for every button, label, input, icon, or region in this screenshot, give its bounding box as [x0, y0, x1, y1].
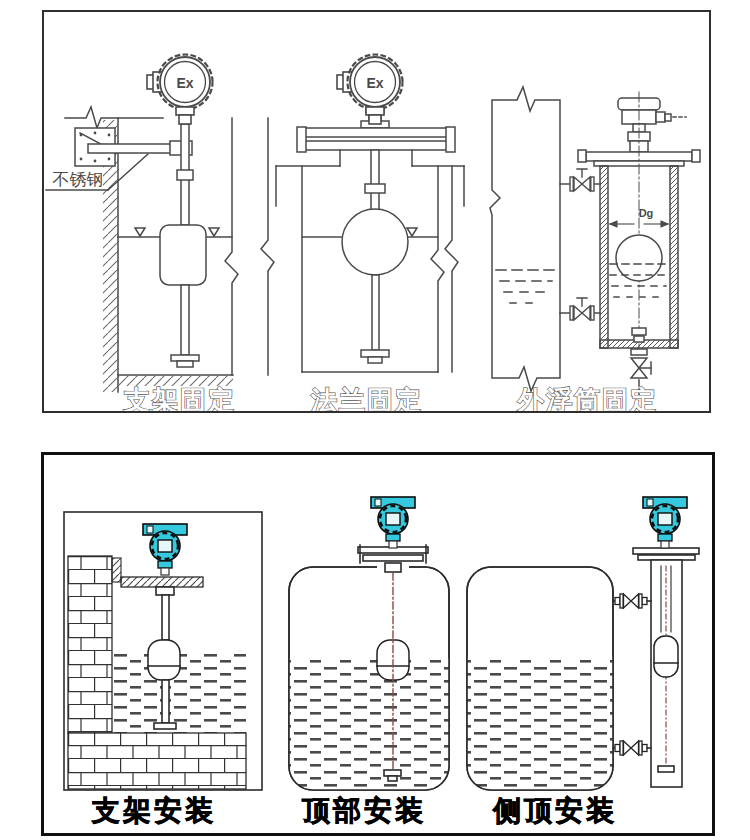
float-icon — [616, 235, 662, 281]
bottom-panel-drawing: 支架安装 顶部安装 — [44, 455, 712, 833]
caption-external-chamber-fixing: 外浮筒固定 — [517, 385, 658, 411]
diagram-flange-fixing: Ex 法兰固定 — [276, 55, 464, 412]
caption-flange-fixing: 法兰固定 — [310, 385, 423, 411]
ex-label: Ex — [176, 75, 193, 91]
water-area — [289, 658, 449, 790]
chamber-wall — [670, 166, 678, 348]
flange-icon — [297, 127, 455, 152]
junction-box-head-icon — [618, 98, 686, 152]
bottom-panel: 支架安装 顶部安装 — [41, 452, 715, 836]
diagram-top-install: 顶部安装 — [289, 497, 449, 826]
water-area — [467, 657, 613, 790]
caption-bracket-fixing: 支架固定 — [123, 385, 236, 411]
level-symbol-icon — [209, 228, 219, 236]
float-icon — [148, 640, 180, 680]
material-note-label: 不锈钢 — [53, 170, 104, 189]
float-icon — [654, 636, 678, 677]
valve-icon — [570, 169, 594, 191]
page: { "top_panel": { "diagrams": [ {"caption… — [0, 0, 750, 840]
diagram-external-chamber-fixing: Dg — [490, 87, 700, 411]
diagram-side-top-install: 侧顶安装 — [467, 497, 699, 826]
float-icon — [342, 209, 408, 275]
transmitter-head-icon — [371, 497, 415, 548]
valve-icon — [570, 298, 594, 320]
level-symbol-icon — [407, 228, 417, 236]
tank-outline — [490, 87, 560, 391]
diagram-bracket-install: 支架安装 — [64, 512, 262, 826]
float-icon — [160, 225, 206, 285]
diagram-bracket-fixing: 不锈钢 Ex 支架固定 — [46, 55, 274, 412]
chamber-wall — [600, 166, 608, 348]
brick-wall — [68, 556, 112, 733]
flange-icon — [633, 548, 699, 560]
diameter-label: Dg — [639, 207, 654, 219]
brick-wall — [68, 733, 246, 789]
transmitter-head-icon — [643, 497, 687, 548]
ex-label: Ex — [366, 75, 383, 91]
top-panel: 不锈钢 Ex 支架固定 — [42, 10, 711, 413]
caption-side-top-install: 侧顶安装 — [492, 795, 617, 826]
caption-top-install: 顶部安装 — [301, 795, 426, 826]
caption-bracket-install: 支架安装 — [91, 795, 216, 826]
support-shelf-icon — [121, 577, 203, 587]
transmitter-head-icon — [143, 524, 187, 575]
valve-icon — [615, 594, 647, 608]
level-symbol-icon — [135, 228, 145, 236]
top-panel-drawing: 不锈钢 Ex 支架固定 — [44, 12, 709, 411]
valve-icon — [615, 741, 647, 755]
